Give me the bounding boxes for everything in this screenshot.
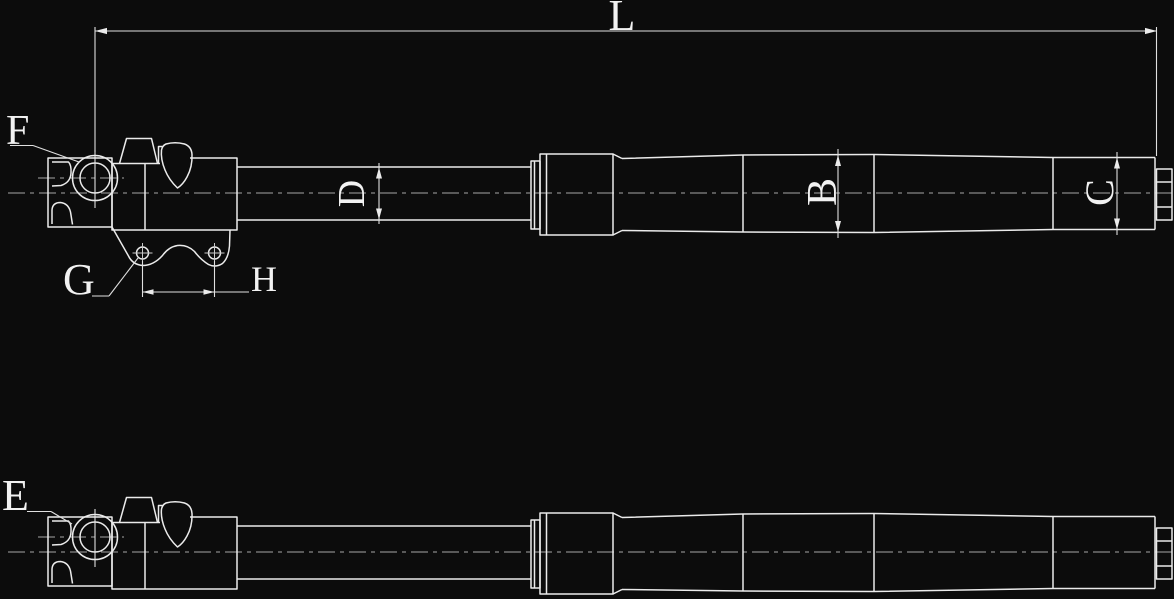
label-end-section-diameter: C xyxy=(1077,179,1122,206)
top-view-profile xyxy=(8,139,1172,236)
arrowhead-right-icon xyxy=(204,289,215,295)
leader-line xyxy=(33,146,79,163)
label-axle-hole: F xyxy=(6,108,29,154)
label-second-view: E xyxy=(2,471,29,520)
arrowhead-up-icon xyxy=(835,155,841,166)
callout-second-view: E xyxy=(2,471,72,524)
callout-bracket-hole: G xyxy=(63,255,138,304)
arrowhead-left-icon xyxy=(95,28,107,34)
fork-leg-technical-drawing: L D B C H F G xyxy=(0,0,1174,599)
arrowhead-down-icon xyxy=(376,209,382,220)
arrowhead-up-icon xyxy=(1114,158,1120,169)
dimension-outer-tube-diameter: B xyxy=(800,149,846,238)
cad-drawing-page: L D B C H F G xyxy=(0,0,1174,599)
label-overall-length: L xyxy=(609,0,636,40)
label-hole-spacing: H xyxy=(251,259,277,299)
dimension-end-section-diameter: C xyxy=(1077,152,1122,235)
bottom-view-profile xyxy=(8,498,1172,595)
label-inner-tube-diameter: D xyxy=(331,180,373,207)
arrowhead-down-icon xyxy=(835,221,841,232)
caliper-bracket xyxy=(112,227,230,266)
arrowhead-up-icon xyxy=(376,168,382,179)
callout-axle-hole: F xyxy=(6,108,79,162)
dimension-overall-length: L xyxy=(95,0,1157,156)
arrowhead-right-icon xyxy=(1145,28,1157,34)
arrowhead-left-icon xyxy=(143,289,154,295)
arrowhead-down-icon xyxy=(1114,219,1120,230)
leader-line xyxy=(109,258,138,296)
label-outer-tube-diameter: B xyxy=(800,178,846,206)
bracket-outline xyxy=(112,227,230,266)
label-bracket-hole: G xyxy=(63,255,95,304)
